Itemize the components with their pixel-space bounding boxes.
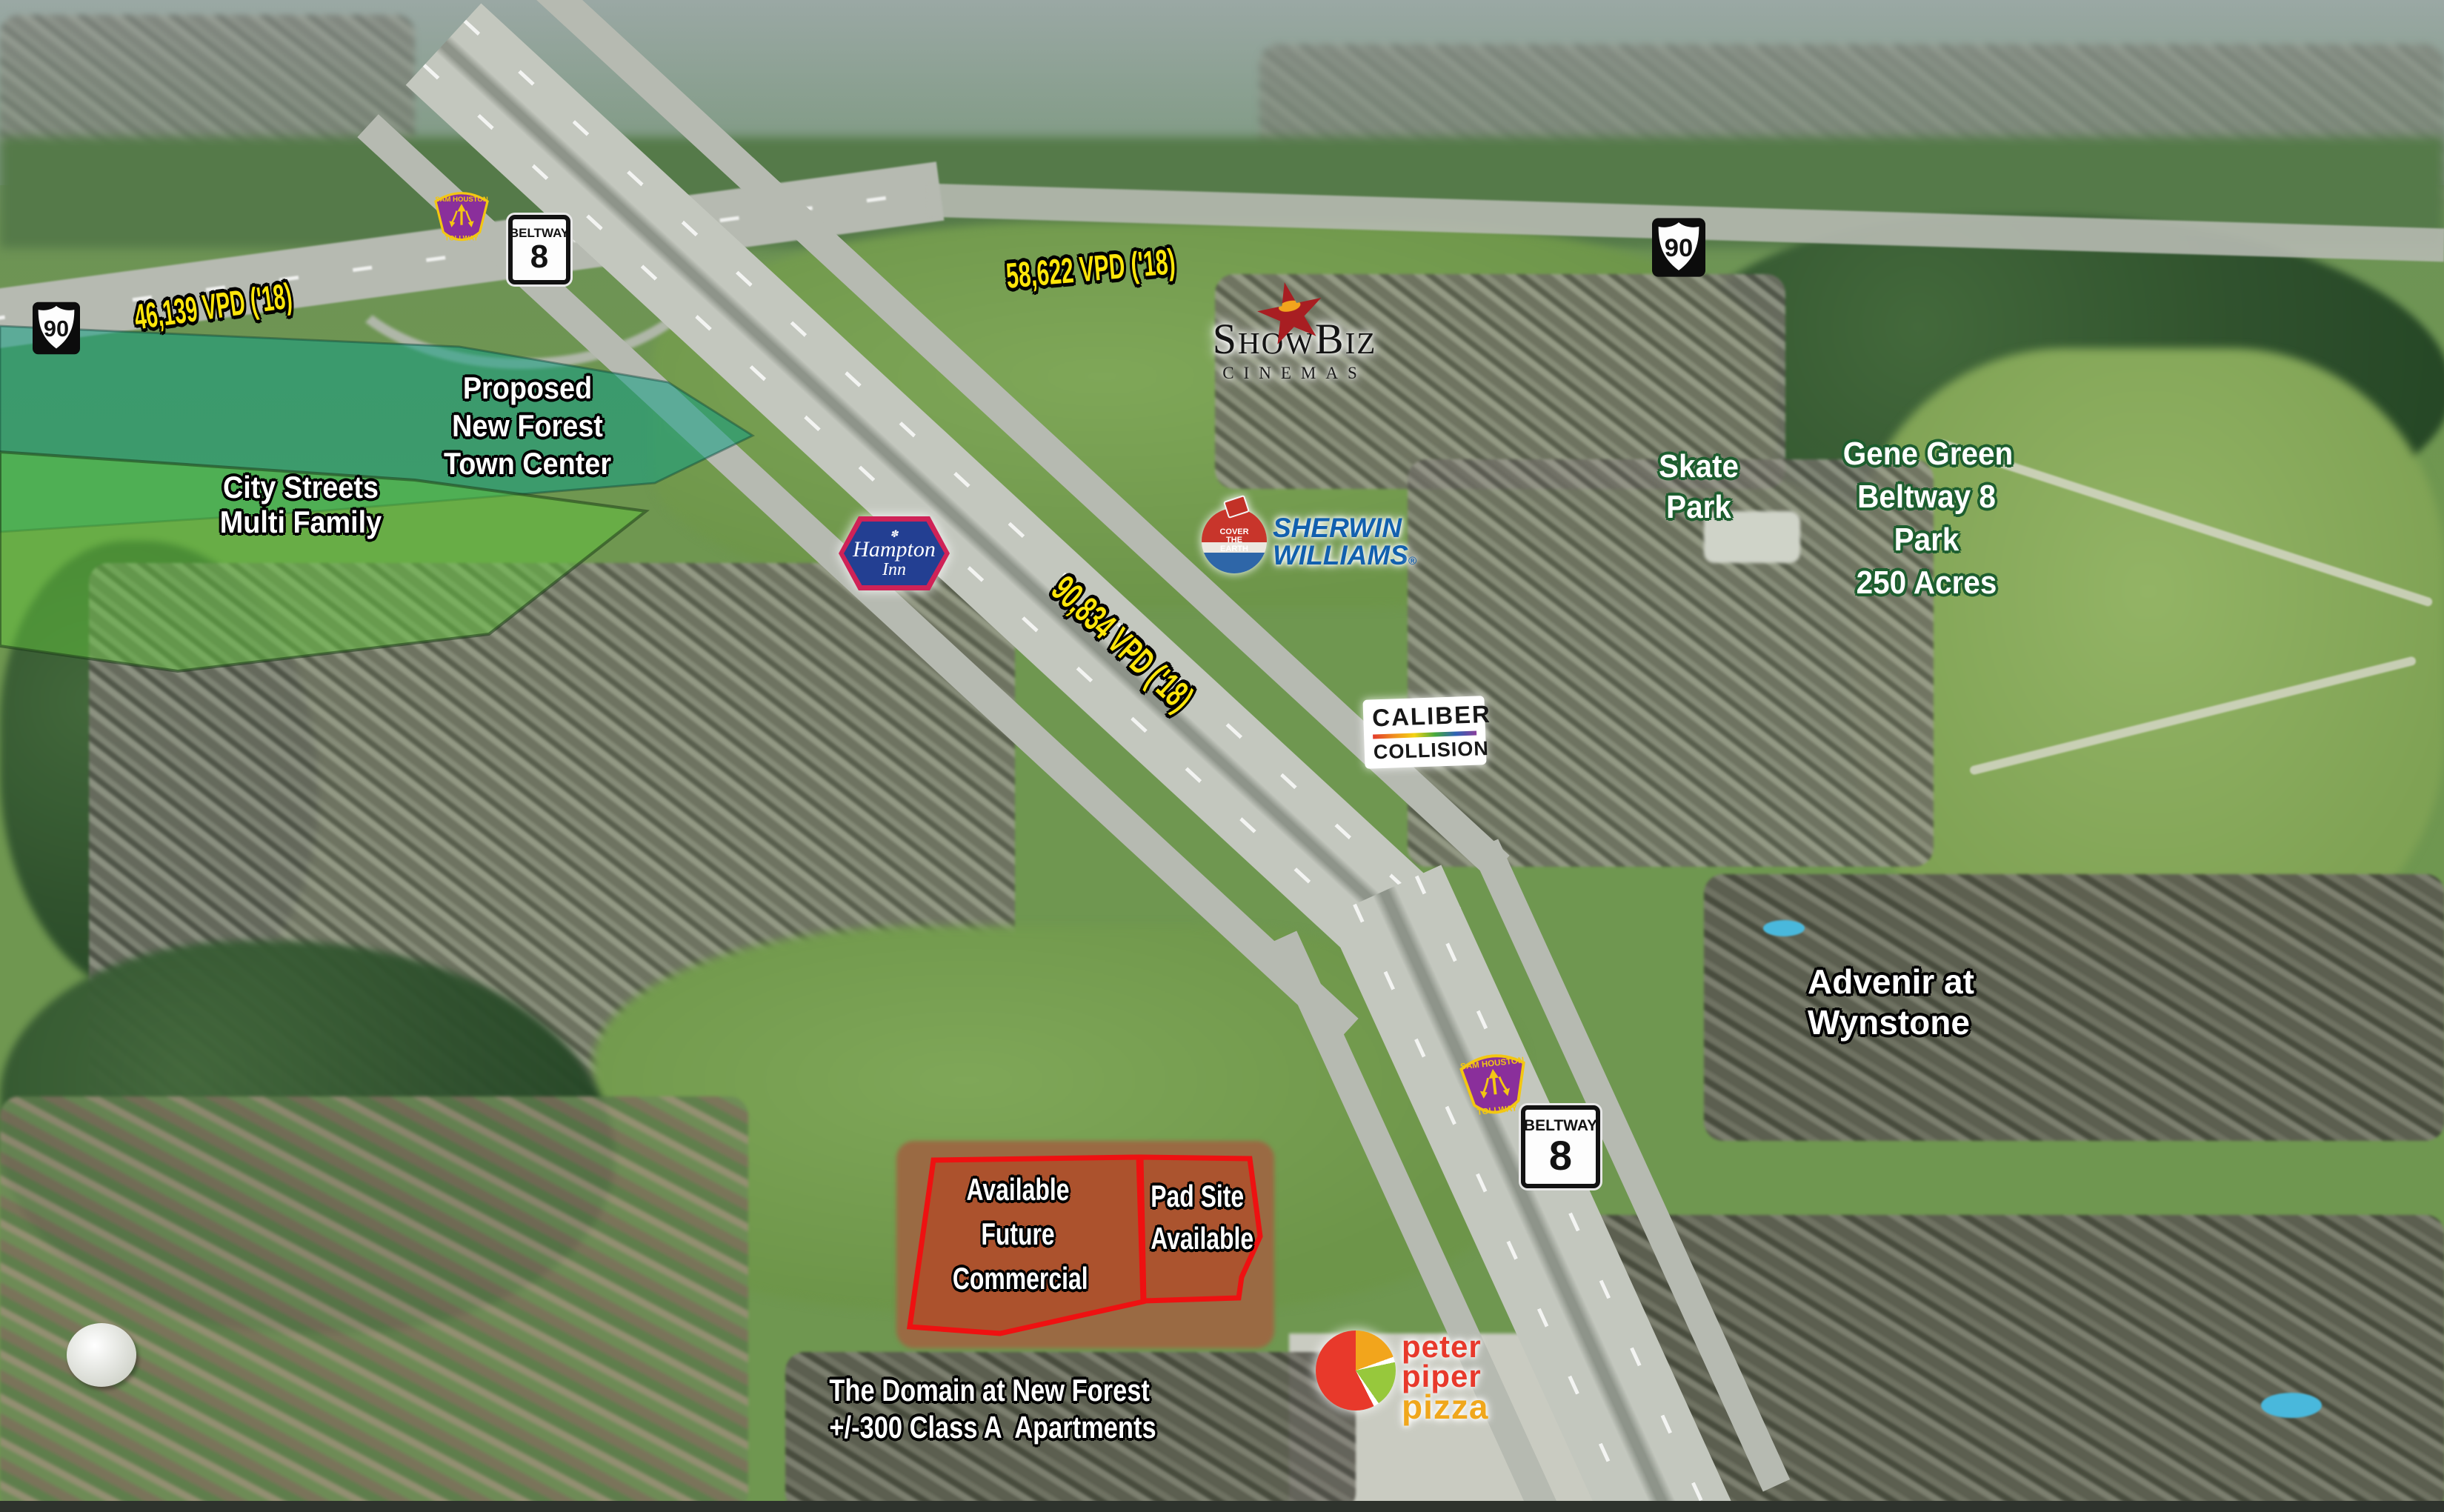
tollway-name-bottom: TOLLWAY: [444, 234, 479, 242]
gene-green-park-label: Gene Green Beltway 8 Park 250 Acres: [1843, 433, 2010, 605]
beltway-8-sign: BELTWAY 8: [508, 215, 570, 284]
beltway-8-sign: BELTWAY 8: [1521, 1105, 1600, 1188]
proposed-town-center-label: Proposed New Forest Town Center: [427, 369, 627, 482]
collision-line: COLLISION: [1373, 738, 1477, 762]
aerial-photo: 90 90 SAM HOUSTON TOLLWAY BELTWAY 8 SAM …: [0, 0, 2444, 1512]
pizza-line: pizza: [1402, 1391, 1488, 1424]
beltway-number: 8: [530, 241, 548, 273]
hampton-badge: ✽ Hampton Inn: [844, 522, 945, 585]
hampton-inn: Inn: [882, 561, 906, 579]
route-number: 90: [1665, 234, 1693, 262]
highlight-overlays: [0, 0, 2444, 1512]
sherwin-line: SHERWIN: [1273, 514, 1416, 542]
available-commercial-label: Available Future Commercial: [953, 1168, 1083, 1301]
hampton-name: Hampton: [853, 539, 936, 561]
williams-line: WILLIAMS®: [1273, 542, 1416, 569]
domain-apartments-label: The Domain at New Forest +/-300 Class A …: [829, 1372, 1108, 1446]
caliber-collision-sign: CALIBER COLLISION: [1362, 696, 1486, 769]
caliber-line: CALIBER: [1372, 702, 1476, 732]
pad-site-label: Pad Site Available: [1151, 1175, 1241, 1259]
sam-houston-tollway-shield: SAM HOUSTON TOLLWAY: [432, 184, 491, 247]
route-number: 90: [44, 316, 69, 342]
peter-piper-wordmark: peter piper pizza: [1402, 1332, 1488, 1423]
us-90-shield-east: 90: [1652, 218, 1705, 277]
sherwin-wordmark: SHERWIN WILLIAMS®: [1273, 514, 1416, 569]
skate-park-label: Skate Park: [1654, 446, 1743, 527]
hampton-border: ✽ Hampton Inn: [839, 516, 950, 590]
peter-piper-pizza-logo: peter piper pizza: [1316, 1328, 1538, 1416]
slogan-earth: EARTH: [1220, 545, 1248, 554]
beltway-number: 8: [1549, 1135, 1572, 1176]
advenir-wynstone-label: Advenir at Wynstone: [1808, 962, 2008, 1043]
sherwin-globe-icon: COVER THE EARTH: [1202, 508, 1267, 573]
pizza-pie-icon: [1316, 1331, 1396, 1411]
star-center-dot: [1278, 299, 1302, 314]
us-90-shield-west: 90: [33, 299, 80, 357]
showbiz-sub: CINEMAS: [1185, 364, 1404, 383]
city-streets-label: City Streets Multi Family: [194, 470, 407, 539]
peter-line: peter: [1402, 1332, 1488, 1362]
registered-mark: ®: [1408, 555, 1416, 567]
showbiz-cinemas-logo: ShowBiz CINEMAS: [1185, 282, 1404, 383]
tollway-name-top: SAM HOUSTON: [435, 196, 488, 204]
hampton-inn-logo: ✽ Hampton Inn: [839, 516, 950, 590]
piper-line: piper: [1402, 1362, 1488, 1391]
sherwin-williams-logo: COVER THE EARTH SHERWIN WILLIAMS®: [1202, 504, 1379, 578]
